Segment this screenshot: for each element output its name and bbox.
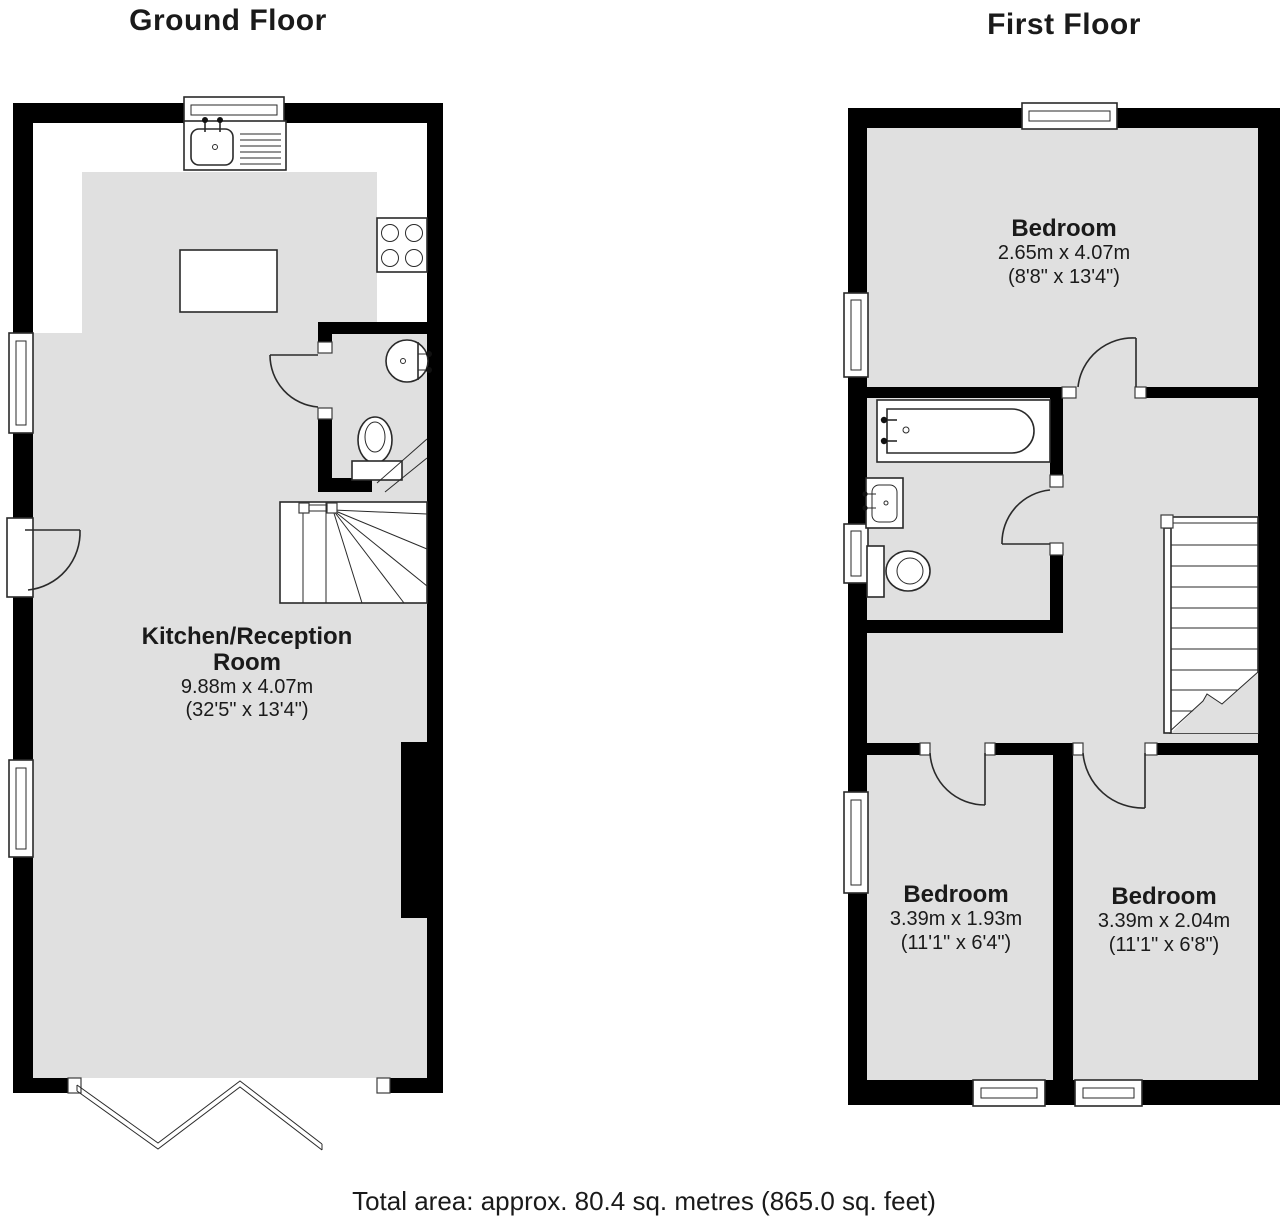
stove-icon	[377, 218, 427, 272]
room-name: Kitchen/Reception Room	[122, 624, 372, 676]
staircase-icon	[1161, 515, 1258, 733]
window-icon	[9, 760, 33, 857]
window-icon	[1022, 103, 1117, 129]
bathroom-sink-icon	[862, 478, 903, 528]
room-dim-metric: 9.88m x 4.07m	[122, 676, 372, 700]
window-icon	[184, 97, 284, 123]
window-icon	[844, 524, 868, 583]
kitchen-sink-icon	[184, 117, 286, 170]
bathtub-icon	[877, 400, 1050, 462]
room-dim-metric: 3.39m x 1.93m	[846, 908, 1066, 932]
room-name: Bedroom	[1054, 884, 1274, 910]
room-label-bedroom-right: Bedroom 3.39m x 2.04m (11'1" x 6'8")	[1054, 884, 1274, 957]
chimney-breast	[401, 742, 427, 918]
room-label-bedroom-left: Bedroom 3.39m x 1.93m (11'1" x 6'4")	[846, 882, 1066, 955]
room-name: Bedroom	[846, 882, 1066, 908]
total-area-text: Total area: approx. 80.4 sq. metres (865…	[0, 1186, 1288, 1217]
window-icon	[1075, 1080, 1142, 1106]
room-dim-imperial: (11'1" x 6'8")	[1054, 934, 1274, 958]
room-dim-imperial: (8'8" x 13'4")	[954, 266, 1174, 290]
window-icon	[9, 333, 33, 433]
first-floor-title: First Floor	[848, 8, 1280, 42]
room-dim-imperial: (11'1" x 6'4")	[846, 932, 1066, 956]
room-dim-metric: 3.39m x 2.04m	[1054, 910, 1274, 934]
kitchen-island	[180, 250, 277, 312]
room-dim-imperial: (32'5" x 13'4")	[122, 699, 372, 723]
window-icon	[973, 1080, 1045, 1106]
room-name: Bedroom	[954, 216, 1174, 242]
room-label-kitchen: Kitchen/Reception Room 9.88m x 4.07m (32…	[122, 624, 372, 723]
floorplan-drawing	[0, 0, 1288, 1228]
room-dim-metric: 2.65m x 4.07m	[954, 242, 1174, 266]
floorplan-page: Ground Floor First Floor Kitchen/Recepti…	[0, 0, 1288, 1228]
window-icon	[844, 792, 868, 893]
window-icon	[844, 293, 868, 377]
ground-floor-title: Ground Floor	[13, 4, 443, 38]
room-label-bedroom-top: Bedroom 2.65m x 4.07m (8'8" x 13'4")	[954, 216, 1174, 289]
